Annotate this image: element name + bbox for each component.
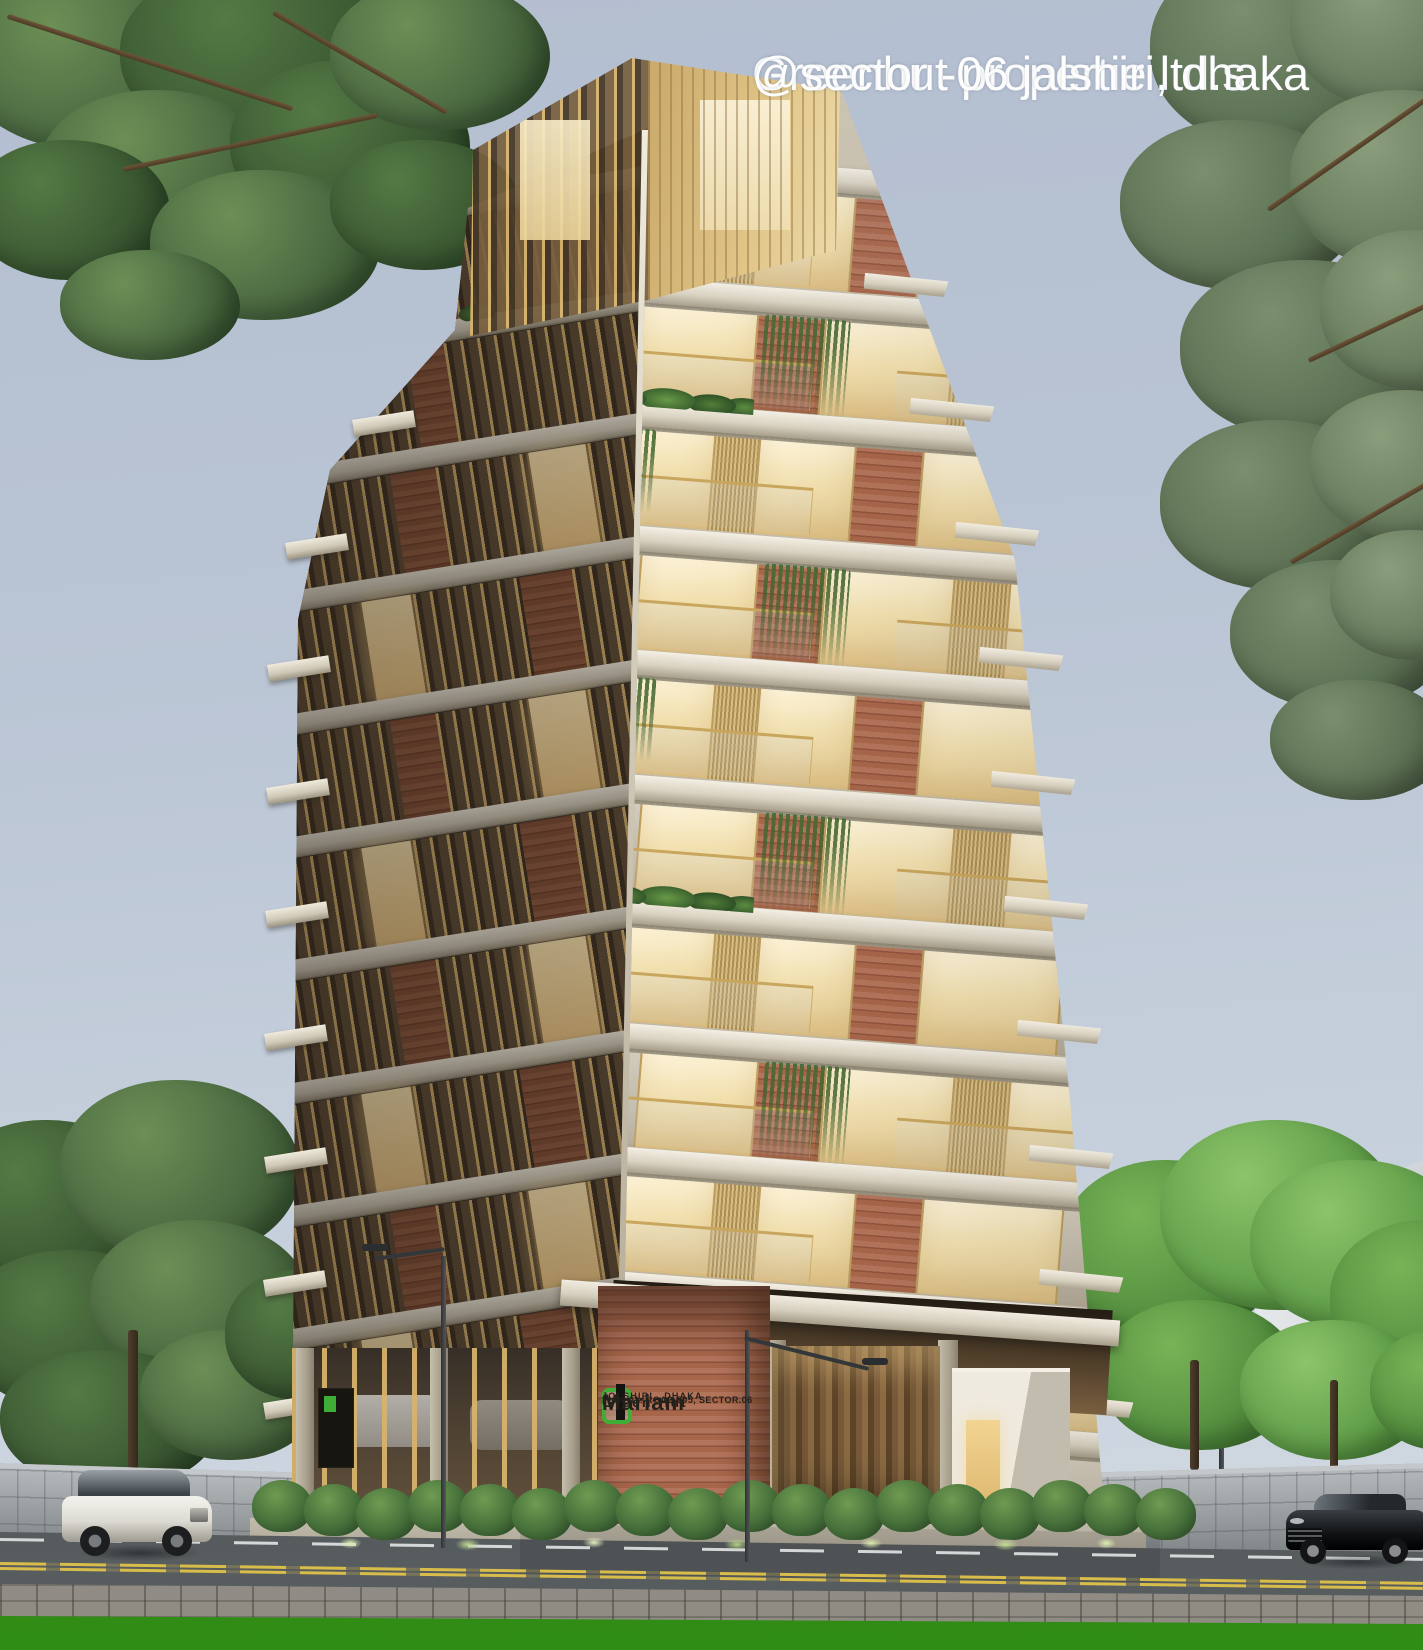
street-lamp-pole (441, 1256, 446, 1548)
side-logo-panel (318, 1388, 354, 1468)
shrub (304, 1484, 364, 1536)
tree-trunk (1330, 1380, 1338, 1470)
shrub (876, 1480, 936, 1532)
street-lamp-head (362, 1244, 388, 1251)
penthouse-window (520, 120, 590, 240)
shrub (252, 1480, 312, 1532)
shrub-row (252, 1474, 1152, 1534)
car-wheel (1382, 1538, 1408, 1564)
suv-grille (190, 1508, 208, 1522)
shrub (408, 1480, 468, 1532)
architectural-render-scene: Green Hut Mariam Plot# 01: ROAD.505, SEC… (0, 0, 1423, 1650)
flower-bed (300, 1530, 1140, 1554)
street-lamp-head (862, 1358, 888, 1365)
shrub (720, 1480, 780, 1532)
shrub (616, 1484, 676, 1536)
shrub (1136, 1488, 1196, 1540)
tree-trunk (1190, 1360, 1199, 1470)
greenhut-logo-icon (324, 1396, 336, 1412)
sign-city-line: JOLSHIRI . DHAKA (602, 1391, 703, 1401)
car-headlight (1290, 1518, 1304, 1524)
shrub (1084, 1484, 1144, 1536)
suv-wheel (162, 1526, 192, 1556)
white-suv (62, 1468, 212, 1560)
black-car (1286, 1494, 1423, 1564)
car-wheel (1300, 1538, 1326, 1564)
tree-trunk (128, 1330, 138, 1480)
caption-line-2: @sector -06 jalshiri, dhaka (752, 44, 1309, 104)
shrub (1032, 1480, 1092, 1532)
shrub (928, 1484, 988, 1536)
shrub (564, 1480, 624, 1532)
suv-wheel (80, 1526, 110, 1556)
shrub (772, 1484, 832, 1536)
shrub (460, 1484, 520, 1536)
tree-foliage (60, 250, 240, 360)
street-lamp-pole (745, 1330, 750, 1562)
